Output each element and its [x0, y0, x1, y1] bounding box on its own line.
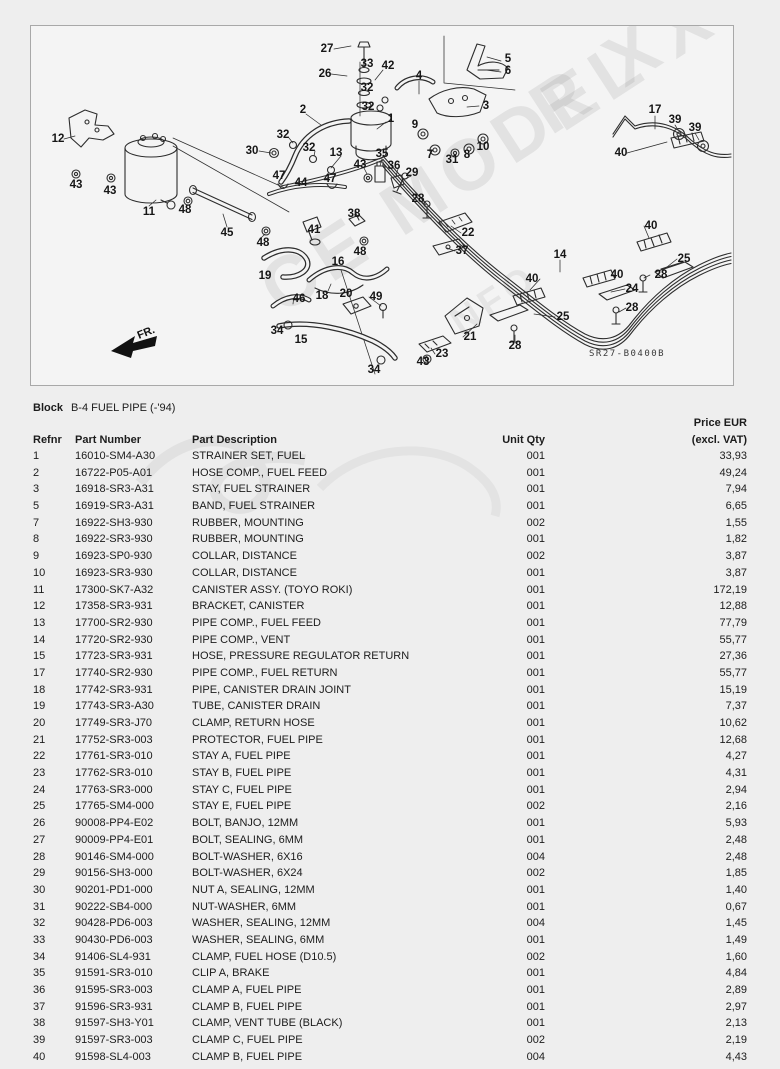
cell-description: NUT A, SEALING, 12MM — [192, 882, 490, 899]
cell-qty: 002 — [490, 548, 545, 565]
callout-32: 32 — [303, 142, 316, 154]
cell-part-number: 90146-SM4-000 — [75, 849, 192, 866]
table-row: 3691595-SR3-003CLAMP A, FUEL PIPE0012,89 — [33, 982, 747, 999]
cell-part-number: 17752-SR3-003 — [75, 732, 192, 749]
table-row: 1117300-SK7-A32CANISTER ASSY. (TOYO ROKI… — [33, 582, 747, 599]
callout-7: 7 — [427, 149, 433, 161]
column-header-row: Refnr Part Number Part Description Unit … — [33, 432, 747, 449]
table-row: 2017749-SR3-J70CLAMP, RETURN HOSE00110,6… — [33, 715, 747, 732]
cell-refnr: 29 — [33, 865, 75, 882]
table-row: 1016923-SR3-930COLLAR, DISTANCE0013,87 — [33, 565, 747, 582]
callout-13: 13 — [330, 147, 343, 159]
cell-part-number: 17300-SK7-A32 — [75, 582, 192, 599]
cell-refnr: 23 — [33, 765, 75, 782]
cell-part-number: 16923-SR3-930 — [75, 565, 192, 582]
cell-refnr: 20 — [33, 715, 75, 732]
catalog-page: { "colors":{"background":"#eeeeee","pane… — [0, 0, 780, 1069]
cell-part-number: 16919-SR3-A31 — [75, 498, 192, 515]
cell-qty: 004 — [490, 849, 545, 866]
cell-price: 1,40 — [545, 882, 747, 899]
cell-refnr: 12 — [33, 598, 75, 615]
cell-description: CLAMP B, FUEL PIPE — [192, 999, 490, 1016]
callout-29: 29 — [406, 167, 419, 179]
table-row: 516919-SR3-A31BAND, FUEL STRAINER0016,65 — [33, 498, 747, 515]
callout-30: 30 — [246, 145, 259, 157]
table-row: 3991597-SR3-003CLAMP C, FUEL PIPE0022,19 — [33, 1032, 747, 1049]
callout-32: 32 — [362, 101, 375, 113]
callout-17: 17 — [649, 104, 662, 116]
cell-description: CLIP A, BRAKE — [192, 965, 490, 982]
cell-description: BOLT-WASHER, 6X24 — [192, 865, 490, 882]
table-row: 1517723-SR3-931HOSE, PRESSURE REGULATOR … — [33, 648, 747, 665]
callout-15: 15 — [295, 334, 308, 346]
callout-49: 49 — [370, 291, 383, 303]
table-row: 1217358-SR3-931BRACKET, CANISTER00112,88 — [33, 598, 747, 615]
cell-refnr: 27 — [33, 832, 75, 849]
cell-part-number: 16922-SR3-930 — [75, 531, 192, 548]
cell-refnr: 18 — [33, 682, 75, 699]
table-row: 4091598-SL4-003CLAMP B, FUEL PIPE0044,43 — [33, 1049, 747, 1066]
callout-33: 33 — [361, 58, 374, 70]
cell-description: PROTECTOR, FUEL PIPE — [192, 732, 490, 749]
cell-qty: 002 — [490, 515, 545, 532]
cell-qty: 001 — [490, 632, 545, 649]
cell-qty: 002 — [490, 798, 545, 815]
callout-25: 25 — [557, 311, 570, 323]
cell-qty: 001 — [490, 982, 545, 999]
cell-refnr: 19 — [33, 698, 75, 715]
callout-1: 1 — [388, 113, 394, 125]
cell-refnr: 26 — [33, 815, 75, 832]
cell-qty: 001 — [490, 498, 545, 515]
callout-37: 37 — [456, 245, 469, 257]
cell-qty: 001 — [490, 598, 545, 615]
table-row: 1317700-SR2-930PIPE COMP., FUEL FEED0017… — [33, 615, 747, 632]
cell-refnr: 35 — [33, 965, 75, 982]
cell-description: RUBBER, MOUNTING — [192, 531, 490, 548]
cell-price: 2,16 — [545, 798, 747, 815]
cell-part-number: 16722-P05-A01 — [75, 465, 192, 482]
cell-qty: 001 — [490, 481, 545, 498]
callout-25: 25 — [678, 253, 691, 265]
cell-description: CLAMP B, FUEL PIPE — [192, 1049, 490, 1066]
cell-refnr: 34 — [33, 949, 75, 966]
callout-46: 46 — [293, 293, 306, 305]
cell-qty: 001 — [490, 565, 545, 582]
cell-description: CLAMP, RETURN HOSE — [192, 715, 490, 732]
cell-part-number: 16923-SP0-930 — [75, 548, 192, 565]
cell-part-number: 91597-SR3-003 — [75, 1032, 192, 1049]
callout-27: 27 — [321, 43, 334, 55]
callout-40: 40 — [645, 220, 658, 232]
cell-part-number: 17765-SM4-000 — [75, 798, 192, 815]
cell-refnr: 36 — [33, 982, 75, 999]
cell-part-number: 16918-SR3-A31 — [75, 481, 192, 498]
table-row: 916923-SP0-930COLLAR, DISTANCE0023,87 — [33, 548, 747, 565]
cell-price: 3,87 — [545, 548, 747, 565]
table-row: 1417720-SR2-930PIPE COMP., VENT00155,77 — [33, 632, 747, 649]
cell-description: CLAMP, FUEL HOSE (D10.5) — [192, 949, 490, 966]
cell-qty: 001 — [490, 682, 545, 699]
callout-43: 43 — [70, 179, 83, 191]
callout-43: 43 — [354, 159, 367, 171]
callout-43: 43 — [417, 356, 430, 368]
cell-description: RUBBER, MOUNTING — [192, 515, 490, 532]
table-row: 3491406-SL4-931CLAMP, FUEL HOSE (D10.5)0… — [33, 949, 747, 966]
cell-refnr: 25 — [33, 798, 75, 815]
callout-47: 47 — [273, 170, 286, 182]
table-row: 816922-SR3-930RUBBER, MOUNTING0011,82 — [33, 531, 747, 548]
callout-20: 20 — [340, 288, 353, 300]
col-header-price-line2: (excl. VAT) — [545, 432, 747, 449]
callout-47: 47 — [324, 173, 337, 185]
callout-40: 40 — [615, 147, 628, 159]
cell-qty: 004 — [490, 1049, 545, 1066]
cell-price: 2,48 — [545, 849, 747, 866]
cell-part-number: 17740-SR2-930 — [75, 665, 192, 682]
cell-description: CLAMP, VENT TUBE (BLACK) — [192, 1015, 490, 1032]
callout-43: 43 — [104, 185, 117, 197]
table-row: 216722-P05-A01HOSE COMP., FUEL FEED00149… — [33, 465, 747, 482]
cell-price: 55,77 — [545, 632, 747, 649]
cell-part-number: 90008-PP4-E02 — [75, 815, 192, 832]
cell-part-number: 16010-SM4-A30 — [75, 448, 192, 465]
cell-price: 2,19 — [545, 1032, 747, 1049]
cell-price: 2,97 — [545, 999, 747, 1016]
callout-39: 39 — [669, 114, 682, 126]
cell-description: STAY B, FUEL PIPE — [192, 765, 490, 782]
callout-42: 42 — [382, 60, 395, 72]
table-row: 3591591-SR3-010CLIP A, BRAKE0014,84 — [33, 965, 747, 982]
callout-21: 21 — [464, 331, 477, 343]
cell-qty: 001 — [490, 648, 545, 665]
cell-refnr: 14 — [33, 632, 75, 649]
callout-28: 28 — [412, 193, 425, 205]
cell-part-number: 90009-PP4-E01 — [75, 832, 192, 849]
cell-qty: 001 — [490, 465, 545, 482]
col-header-refnr: Refnr — [33, 432, 75, 449]
callout-38: 38 — [348, 208, 361, 220]
cell-price: 3,87 — [545, 565, 747, 582]
cell-qty: 001 — [490, 832, 545, 849]
callout-44: 44 — [295, 177, 308, 189]
callout-8: 8 — [464, 149, 470, 161]
cell-price: 1,60 — [545, 949, 747, 966]
callout-11: 11 — [143, 206, 155, 218]
table-row: 3190222-SB4-000NUT-WASHER, 6MM0010,67 — [33, 899, 747, 916]
cell-part-number: 91406-SL4-931 — [75, 949, 192, 966]
callout-12: 12 — [52, 133, 65, 145]
col-header-description: Part Description — [192, 432, 490, 449]
callout-24: 24 — [626, 283, 639, 295]
cell-refnr: 13 — [33, 615, 75, 632]
cell-description: COLLAR, DISTANCE — [192, 565, 490, 582]
callout-23: 23 — [436, 348, 449, 360]
cell-price: 4,43 — [545, 1049, 747, 1066]
cell-description: BOLT, BANJO, 12MM — [192, 815, 490, 832]
cell-qty: 001 — [490, 698, 545, 715]
cell-description: HOSE, PRESSURE REGULATOR RETURN — [192, 648, 490, 665]
callout-40: 40 — [611, 269, 624, 281]
cell-description: STAY C, FUEL PIPE — [192, 782, 490, 799]
diagram-panel: R X CE MODEL X NFO — [30, 25, 734, 386]
cell-refnr: 33 — [33, 932, 75, 949]
cell-refnr: 30 — [33, 882, 75, 899]
cell-qty: 001 — [490, 531, 545, 548]
cell-part-number: 17763-SR3-000 — [75, 782, 192, 799]
cell-qty: 001 — [490, 782, 545, 799]
cell-part-number: 17720-SR2-930 — [75, 632, 192, 649]
table-row: 2517765-SM4-000STAY E, FUEL PIPE0022,16 — [33, 798, 747, 815]
cell-description: NUT-WASHER, 6MM — [192, 899, 490, 916]
cell-description: PIPE COMP., FUEL FEED — [192, 615, 490, 632]
cell-description: CLAMP A, FUEL PIPE — [192, 982, 490, 999]
cell-price: 1,82 — [545, 531, 747, 548]
cell-description: PIPE COMP., VENT — [192, 632, 490, 649]
table-row: 3891597-SH3-Y01CLAMP, VENT TUBE (BLACK)0… — [33, 1015, 747, 1032]
cell-part-number: 90201-PD1-000 — [75, 882, 192, 899]
callout-39: 39 — [689, 122, 702, 134]
cell-qty: 002 — [490, 865, 545, 882]
table-row: 3290428-PD6-003WASHER, SEALING, 12MM0041… — [33, 915, 747, 932]
cell-qty: 001 — [490, 965, 545, 982]
cell-refnr: 37 — [33, 999, 75, 1016]
cell-price: 5,93 — [545, 815, 747, 832]
cell-price: 77,79 — [545, 615, 747, 632]
cell-price: 12,68 — [545, 732, 747, 749]
cell-refnr: 8 — [33, 531, 75, 548]
cell-qty: 001 — [490, 715, 545, 732]
callout-19: 19 — [259, 270, 272, 282]
cell-part-number: 91595-SR3-003 — [75, 982, 192, 999]
callout-16: 16 — [332, 256, 345, 268]
callout-31: 31 — [446, 154, 459, 166]
cell-description: TUBE, CANISTER DRAIN — [192, 698, 490, 715]
callout-48: 48 — [179, 204, 192, 216]
cell-price: 1,85 — [545, 865, 747, 882]
cell-qty: 001 — [490, 615, 545, 632]
cell-description: STAY E, FUEL PIPE — [192, 798, 490, 815]
cell-refnr: 38 — [33, 1015, 75, 1032]
cell-part-number: 90428-PD6-003 — [75, 915, 192, 932]
callout-18: 18 — [316, 290, 329, 302]
cell-part-number: 17742-SR3-931 — [75, 682, 192, 699]
callout-36: 36 — [388, 160, 401, 172]
cell-price: 1,45 — [545, 915, 747, 932]
callout-34: 34 — [271, 325, 284, 337]
cell-refnr: 32 — [33, 915, 75, 932]
table-row: 316918-SR3-A31STAY, FUEL STRAINER0017,94 — [33, 481, 747, 498]
cell-refnr: 11 — [33, 582, 75, 599]
cell-price: 49,24 — [545, 465, 747, 482]
cell-description: BOLT-WASHER, 6X16 — [192, 849, 490, 866]
cell-description: PIPE, CANISTER DRAIN JOINT — [192, 682, 490, 699]
cell-part-number: 17700-SR2-930 — [75, 615, 192, 632]
cell-qty: 001 — [490, 732, 545, 749]
cell-part-number: 90430-PD6-003 — [75, 932, 192, 949]
callout-41: 41 — [308, 224, 321, 236]
cell-qty: 001 — [490, 882, 545, 899]
cell-qty: 001 — [490, 748, 545, 765]
callout-48: 48 — [354, 246, 367, 258]
table-row: 2690008-PP4-E02BOLT, BANJO, 12MM0015,93 — [33, 815, 747, 832]
table-row: 716922-SH3-930RUBBER, MOUNTING0021,55 — [33, 515, 747, 532]
cell-refnr: 9 — [33, 548, 75, 565]
cell-qty: 001 — [490, 1015, 545, 1032]
cell-description: STRAINER SET, FUEL — [192, 448, 490, 465]
cell-price: 7,94 — [545, 481, 747, 498]
callout-9: 9 — [412, 119, 418, 131]
cell-refnr: 1 — [33, 448, 75, 465]
cell-qty: 001 — [490, 899, 545, 916]
cell-description: CLAMP C, FUEL PIPE — [192, 1032, 490, 1049]
cell-price: 2,94 — [545, 782, 747, 799]
cell-price: 172,19 — [545, 582, 747, 599]
cell-refnr: 31 — [33, 899, 75, 916]
cell-part-number: 90222-SB4-000 — [75, 899, 192, 916]
callout-6: 6 — [505, 65, 511, 77]
table-row: 1717740-SR2-930PIPE COMP., FUEL RETURN00… — [33, 665, 747, 682]
cell-price: 2,13 — [545, 1015, 747, 1032]
table-row: 2890146-SM4-000BOLT-WASHER, 6X160042,48 — [33, 849, 747, 866]
callout-28: 28 — [655, 269, 668, 281]
table-row: 2790009-PP4-E01BOLT, SEALING, 6MM0012,48 — [33, 832, 747, 849]
cell-part-number: 17762-SR3-010 — [75, 765, 192, 782]
cell-price: 2,48 — [545, 832, 747, 849]
cell-description: WASHER, SEALING, 6MM — [192, 932, 490, 949]
cell-price: 6,65 — [545, 498, 747, 515]
cell-part-number: 91591-SR3-010 — [75, 965, 192, 982]
cell-refnr: 5 — [33, 498, 75, 515]
cell-qty: 001 — [490, 765, 545, 782]
callout-40: 40 — [526, 273, 539, 285]
table-row: 3090201-PD1-000NUT A, SEALING, 12MM0011,… — [33, 882, 747, 899]
cell-refnr: 15 — [33, 648, 75, 665]
cell-description: BAND, FUEL STRAINER — [192, 498, 490, 515]
table-row: 2217761-SR3-010STAY A, FUEL PIPE0014,27 — [33, 748, 747, 765]
callout-10: 10 — [477, 141, 490, 153]
block-line: BlockB-4 FUEL PIPE (-'94) — [33, 401, 175, 415]
cell-price: 1,49 — [545, 932, 747, 949]
cell-part-number: 90156-SH3-000 — [75, 865, 192, 882]
cell-refnr: 22 — [33, 748, 75, 765]
table-row: 1917743-SR3-A30TUBE, CANISTER DRAIN0017,… — [33, 698, 747, 715]
table-row: 3390430-PD6-003WASHER, SEALING, 6MM0011,… — [33, 932, 747, 949]
cell-description: STAY A, FUEL PIPE — [192, 748, 490, 765]
table-row: 2990156-SH3-000BOLT-WASHER, 6X240021,85 — [33, 865, 747, 882]
diagram-callouts: 2726334232322145639731810293032321343353… — [31, 26, 733, 385]
table-row: 116010-SM4-A30STRAINER SET, FUEL00133,93 — [33, 448, 747, 465]
cell-part-number: 91596-SR3-931 — [75, 999, 192, 1016]
parts-table-body: 116010-SM4-A30STRAINER SET, FUEL00133,93… — [33, 448, 747, 1065]
callout-28: 28 — [626, 302, 639, 314]
cell-description: PIPE COMP., FUEL RETURN — [192, 665, 490, 682]
cell-price: 4,31 — [545, 765, 747, 782]
cell-qty: 001 — [490, 448, 545, 465]
col-header-price-line1: Price EUR — [545, 415, 747, 432]
cell-qty: 002 — [490, 949, 545, 966]
cell-description: HOSE COMP., FUEL FEED — [192, 465, 490, 482]
cell-price: 7,37 — [545, 698, 747, 715]
cell-part-number: 17743-SR3-A30 — [75, 698, 192, 715]
cell-refnr: 28 — [33, 849, 75, 866]
cell-price: 0,67 — [545, 899, 747, 916]
cell-qty: 001 — [490, 932, 545, 949]
callout-22: 22 — [462, 227, 475, 239]
price-header-row: Price EUR — [33, 415, 747, 432]
callout-2: 2 — [300, 104, 306, 116]
callout-5: 5 — [505, 53, 511, 65]
cell-price: 15,19 — [545, 682, 747, 699]
table-row: 3791596-SR3-931CLAMP B, FUEL PIPE0012,97 — [33, 999, 747, 1016]
cell-price: 33,93 — [545, 448, 747, 465]
cell-refnr: 3 — [33, 481, 75, 498]
cell-price: 55,77 — [545, 665, 747, 682]
cell-refnr: 17 — [33, 665, 75, 682]
table-row: 1817742-SR3-931PIPE, CANISTER DRAIN JOIN… — [33, 682, 747, 699]
table-row: 2317762-SR3-010STAY B, FUEL PIPE0014,31 — [33, 765, 747, 782]
callout-4: 4 — [416, 70, 422, 82]
cell-part-number: 17723-SR3-931 — [75, 648, 192, 665]
col-header-qty: Unit Qty — [490, 432, 545, 449]
cell-refnr: 21 — [33, 732, 75, 749]
block-label: Block — [33, 402, 63, 414]
table-row: 2417763-SR3-000STAY C, FUEL PIPE0012,94 — [33, 782, 747, 799]
cell-price: 1,55 — [545, 515, 747, 532]
cell-qty: 001 — [490, 815, 545, 832]
col-header-part-number: Part Number — [75, 432, 192, 449]
callout-48: 48 — [257, 237, 270, 249]
cell-part-number: 91597-SH3-Y01 — [75, 1015, 192, 1032]
callout-45: 45 — [221, 227, 234, 239]
cell-description: CANISTER ASSY. (TOYO ROKI) — [192, 582, 490, 599]
cell-refnr: 39 — [33, 1032, 75, 1049]
callout-32: 32 — [277, 129, 290, 141]
cell-part-number: 17761-SR3-010 — [75, 748, 192, 765]
cell-price: 10,62 — [545, 715, 747, 732]
cell-price: 2,89 — [545, 982, 747, 999]
cell-description: BRACKET, CANISTER — [192, 598, 490, 615]
table-row: 2117752-SR3-003PROTECTOR, FUEL PIPE00112… — [33, 732, 747, 749]
callout-32: 32 — [361, 82, 374, 94]
cell-qty: 004 — [490, 915, 545, 932]
callout-3: 3 — [483, 100, 489, 112]
cell-price: 4,27 — [545, 748, 747, 765]
callout-34: 34 — [368, 364, 381, 376]
cell-price: 27,36 — [545, 648, 747, 665]
cell-description: BOLT, SEALING, 6MM — [192, 832, 490, 849]
cell-refnr: 24 — [33, 782, 75, 799]
cell-qty: 002 — [490, 1032, 545, 1049]
callout-26: 26 — [319, 68, 332, 80]
cell-part-number: 16922-SH3-930 — [75, 515, 192, 532]
cell-price: 12,88 — [545, 598, 747, 615]
cell-refnr: 2 — [33, 465, 75, 482]
cell-refnr: 7 — [33, 515, 75, 532]
cell-qty: 001 — [490, 582, 545, 599]
cell-part-number: 91598-SL4-003 — [75, 1049, 192, 1066]
cell-part-number: 17358-SR3-931 — [75, 598, 192, 615]
callout-14: 14 — [554, 249, 567, 261]
page-title: B-4 FUEL PIPE (-'94) — [71, 402, 175, 414]
cell-qty: 001 — [490, 999, 545, 1016]
cell-description: COLLAR, DISTANCE — [192, 548, 490, 565]
cell-description: WASHER, SEALING, 12MM — [192, 915, 490, 932]
cell-price: 4,84 — [545, 965, 747, 982]
cell-part-number: 17749-SR3-J70 — [75, 715, 192, 732]
cell-refnr: 10 — [33, 565, 75, 582]
cell-qty: 001 — [490, 665, 545, 682]
